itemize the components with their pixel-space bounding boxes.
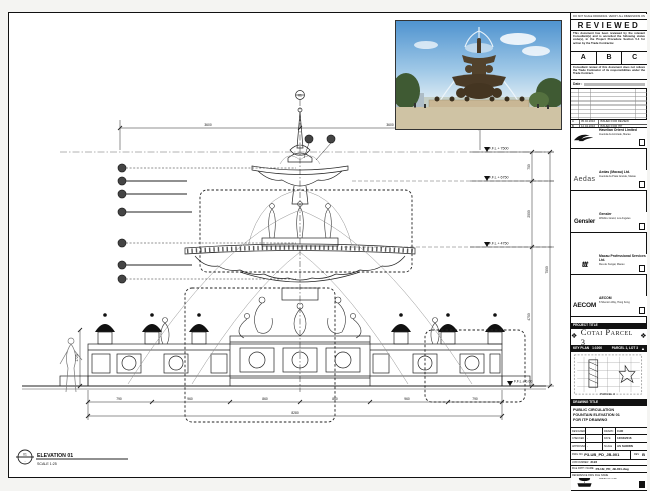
file-path-value: P3-UB_PD_JB-001.dwg <box>596 467 629 471</box>
stamp-date-label: Date : <box>573 82 582 86</box>
designed-value <box>586 428 603 436</box>
checked-label: CHECKED <box>571 435 586 443</box>
revision-entries: A 05.02.2016 ISSUED FOR REVIEW B 12.04.2… <box>571 120 647 128</box>
approved-label: APPROVED <box>571 443 586 450</box>
project-title: ❖ Cotai Parcel 3 ❖ <box>571 329 647 346</box>
elevation-marker-sheet: - <box>24 460 25 464</box>
drawn-label: DRAWN <box>603 428 616 436</box>
drawing-title-bar-label: DRAWING TITLE <box>573 400 598 404</box>
dwg-number-label: DWG NO. <box>571 453 584 456</box>
left-base-dim: 1725 <box>75 354 79 362</box>
right-dim-4750: 4750 <box>527 313 531 321</box>
consultant-row-aedas: Aedas Aedas (Macau) Ltd. Avenida da Prai… <box>571 170 647 191</box>
key-plan-label: KEY PLAN <box>573 346 589 350</box>
gensler-logo: Gensler <box>574 219 595 225</box>
consultant-name: Macau Professional Services Ltd. <box>599 255 646 263</box>
bottom-dim-6: 790 <box>472 397 478 401</box>
status-code-row: A B C <box>571 52 647 65</box>
key-plan-scale: 1:1000 <box>592 346 602 350</box>
status-checkbox <box>639 181 646 188</box>
scale-label: SCALE <box>603 443 616 450</box>
job-number-value: 3123 <box>590 460 597 464</box>
key-plan-parcel: PARCEL 1, LOT 3 <box>612 346 638 350</box>
level-label-0000: F.F.L ± 0.00 <box>514 380 532 384</box>
right-dim-2000: 2000 <box>527 210 531 218</box>
bird-swoosh-logo-icon <box>571 128 598 148</box>
aedas-logo: Aedas <box>574 176 596 183</box>
rev-date: 05.02.2016 <box>580 120 599 124</box>
fountain-photo-art <box>396 21 561 129</box>
mps-logo: ttt <box>582 259 588 269</box>
drawn-value: CAD <box>616 428 647 436</box>
consultant-row-aecom: AECOM AECOM 8 Shenton Way, Hong Kong <box>571 296 647 317</box>
status-code-b: B <box>597 52 623 64</box>
bottom-dim-4: 860 <box>332 397 338 401</box>
project-title-text: Cotai Parcel 3 <box>581 329 637 346</box>
bottom-dim-1: 790 <box>116 397 122 401</box>
ornament-icon: ❖ <box>640 333 647 340</box>
reference-dwg-label: REFERENCE DWG FILE NAME <box>572 474 608 477</box>
consultant-address: 8 Shenton Way, Hong Kong <box>599 302 646 305</box>
key-plan-inner-label: PARCEL 3 <box>600 392 615 396</box>
stamp-date-row: Date : <box>571 80 647 89</box>
consultant-address: Wilshire Grand, Los Angeles <box>599 218 646 221</box>
top-detail-tag-label: 01 <box>298 94 302 98</box>
meta-table: DESIGNED DRAWN CAD CHECKED - DATE 12/04/… <box>571 428 647 451</box>
drawing-title-line-3: FOR ITP DRAWING <box>573 418 645 423</box>
rev-label: REV <box>633 453 640 456</box>
rev-letter: A <box>571 120 580 124</box>
fountain-reference-photo <box>395 20 562 130</box>
right-dim-total: 7500 <box>545 266 549 274</box>
status-checkbox <box>639 265 646 272</box>
reference-dwg-row: REFERENCE DWG FILE NAME <box>571 473 647 479</box>
reviewed-stamp-title: REVIEWED <box>571 20 647 31</box>
checked-value: - <box>586 435 603 443</box>
job-number-label: JOB NUMBER <box>572 461 588 464</box>
consultant-row-client: Havelian Orient Limited Avenida da Amiza… <box>571 128 647 149</box>
reviewed-stamp-paragraph-2: Consultant review of this document does … <box>571 65 647 80</box>
status-checkbox <box>639 223 646 230</box>
bottom-dim-total: 8280 <box>291 411 299 415</box>
north-arrow-icon: ▲ <box>641 346 645 351</box>
date-label: DATE <box>603 435 616 443</box>
consultant-row-mps: ttt Macau Professional Services Ltd. Rua… <box>571 254 647 275</box>
status-checkbox <box>639 139 646 146</box>
status-code-c: C <box>622 52 647 64</box>
level-label-7500: F.F.L + 7500 <box>489 147 509 151</box>
key-plan-drawing: PARCEL 3 <box>571 352 647 400</box>
elevation-marker-number: 01 <box>23 453 27 457</box>
dwg-number-value: P3-UB_PD_JB-001 <box>584 452 630 457</box>
drawing-title-text: PUBLIC CIRCULATION FOUNTAIN ELEVATION 01… <box>571 406 647 428</box>
reviewed-stamp-paragraph-1: This document has been reviewed by the r… <box>571 31 647 52</box>
top-dim-right: 3600 <box>386 123 394 127</box>
status-checkbox <box>639 481 646 488</box>
approved-value: - <box>586 443 603 450</box>
dwg-number-row: DWG NO. P3-UB_PD_JB-001 REV B <box>571 451 647 460</box>
bottom-dim-2: 960 <box>187 397 193 401</box>
stamp-date-line <box>584 83 645 86</box>
designed-label: DESIGNED <box>571 428 586 436</box>
elevation-title: ELEVATION 01 <box>37 453 73 459</box>
file-path-label: FILE PATH / NAME <box>572 467 594 470</box>
consultant-address: Avenida da Praia Grande, Macau <box>599 176 646 179</box>
level-label-6750: F.F.L + 6750 <box>489 176 509 180</box>
scale-value: AS SHOWN <box>616 443 647 450</box>
project-title-bar-label: PROJECT TITLE <box>573 323 598 327</box>
aecom-logo: AECOM <box>573 302 596 309</box>
date-value: 12/04/2016 <box>616 435 647 443</box>
bottom-dim-5: 960 <box>404 397 410 401</box>
revision-grid <box>571 89 647 120</box>
rev-value: B <box>642 452 645 457</box>
right-dim-750: 750 <box>527 164 531 170</box>
top-dim-left: 3600 <box>204 123 212 127</box>
rev-description: ISSUED FOR REVIEW <box>599 120 647 124</box>
ornament-icon: ❖ <box>571 333 578 340</box>
consultant-address: Avenida da Amizade, Macau <box>599 134 646 137</box>
elevation-scale: SCALE 1:25 <box>37 462 57 466</box>
level-label-4750: F.F.L + 4750 <box>489 242 509 246</box>
bottom-dim-3: 860 <box>262 397 268 401</box>
consultant-row-gensler: Gensler Gensler Wilshire Grand, Los Ange… <box>571 212 647 233</box>
status-code-a: A <box>571 52 597 64</box>
status-checkbox <box>639 307 646 314</box>
